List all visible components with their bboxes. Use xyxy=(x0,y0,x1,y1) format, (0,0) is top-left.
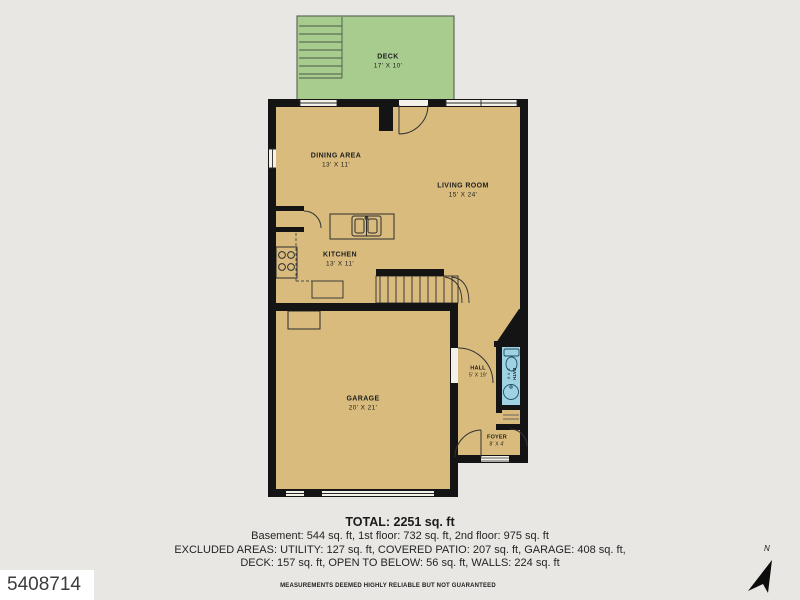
excluded-areas-text-1: EXCLUDED AREAS: UTILITY: 127 sq. ft, COV… xyxy=(0,544,800,558)
room-label-foyer: FOYER 8' X 4' xyxy=(487,434,507,447)
compass-north-label: N xyxy=(764,544,770,553)
disclaimer-text: MEASUREMENTS DEEMED HIGHLY RELIABLE BUT … xyxy=(280,582,496,589)
floor-areas-text: Basement: 544 sq. ft, 1st floor: 732 sq.… xyxy=(0,530,800,544)
floorplan-page: DECK 17' X 10' DINING AREA 13' X 11' LIV… xyxy=(0,0,800,600)
total-area-text: TOTAL: 2251 sq. ft xyxy=(0,515,800,530)
room-label-deck: DECK 17' X 10' xyxy=(374,54,403,71)
compass: N xyxy=(740,542,792,598)
room-label-living: LIVING ROOM 15' X 24' xyxy=(437,183,488,200)
room-label-garage: GARAGE 20' X 21' xyxy=(346,396,379,413)
room-label-kitchen: KITCHEN 13' X 11' xyxy=(323,252,357,269)
room-label-bath: BATH 3' X 8' xyxy=(506,368,516,380)
excluded-areas-text-2: DECK: 157 sq. ft, OPEN TO BELOW: 56 sq. … xyxy=(0,557,800,571)
area-summary: TOTAL: 2251 sq. ft Basement: 544 sq. ft,… xyxy=(0,515,800,571)
listing-id: 5408714 xyxy=(0,570,94,600)
room-label-hall: HALL 5' X 19' xyxy=(469,365,487,378)
floorplan-drawing xyxy=(0,0,800,600)
room-label-dining: DINING AREA 13' X 11' xyxy=(311,153,361,170)
